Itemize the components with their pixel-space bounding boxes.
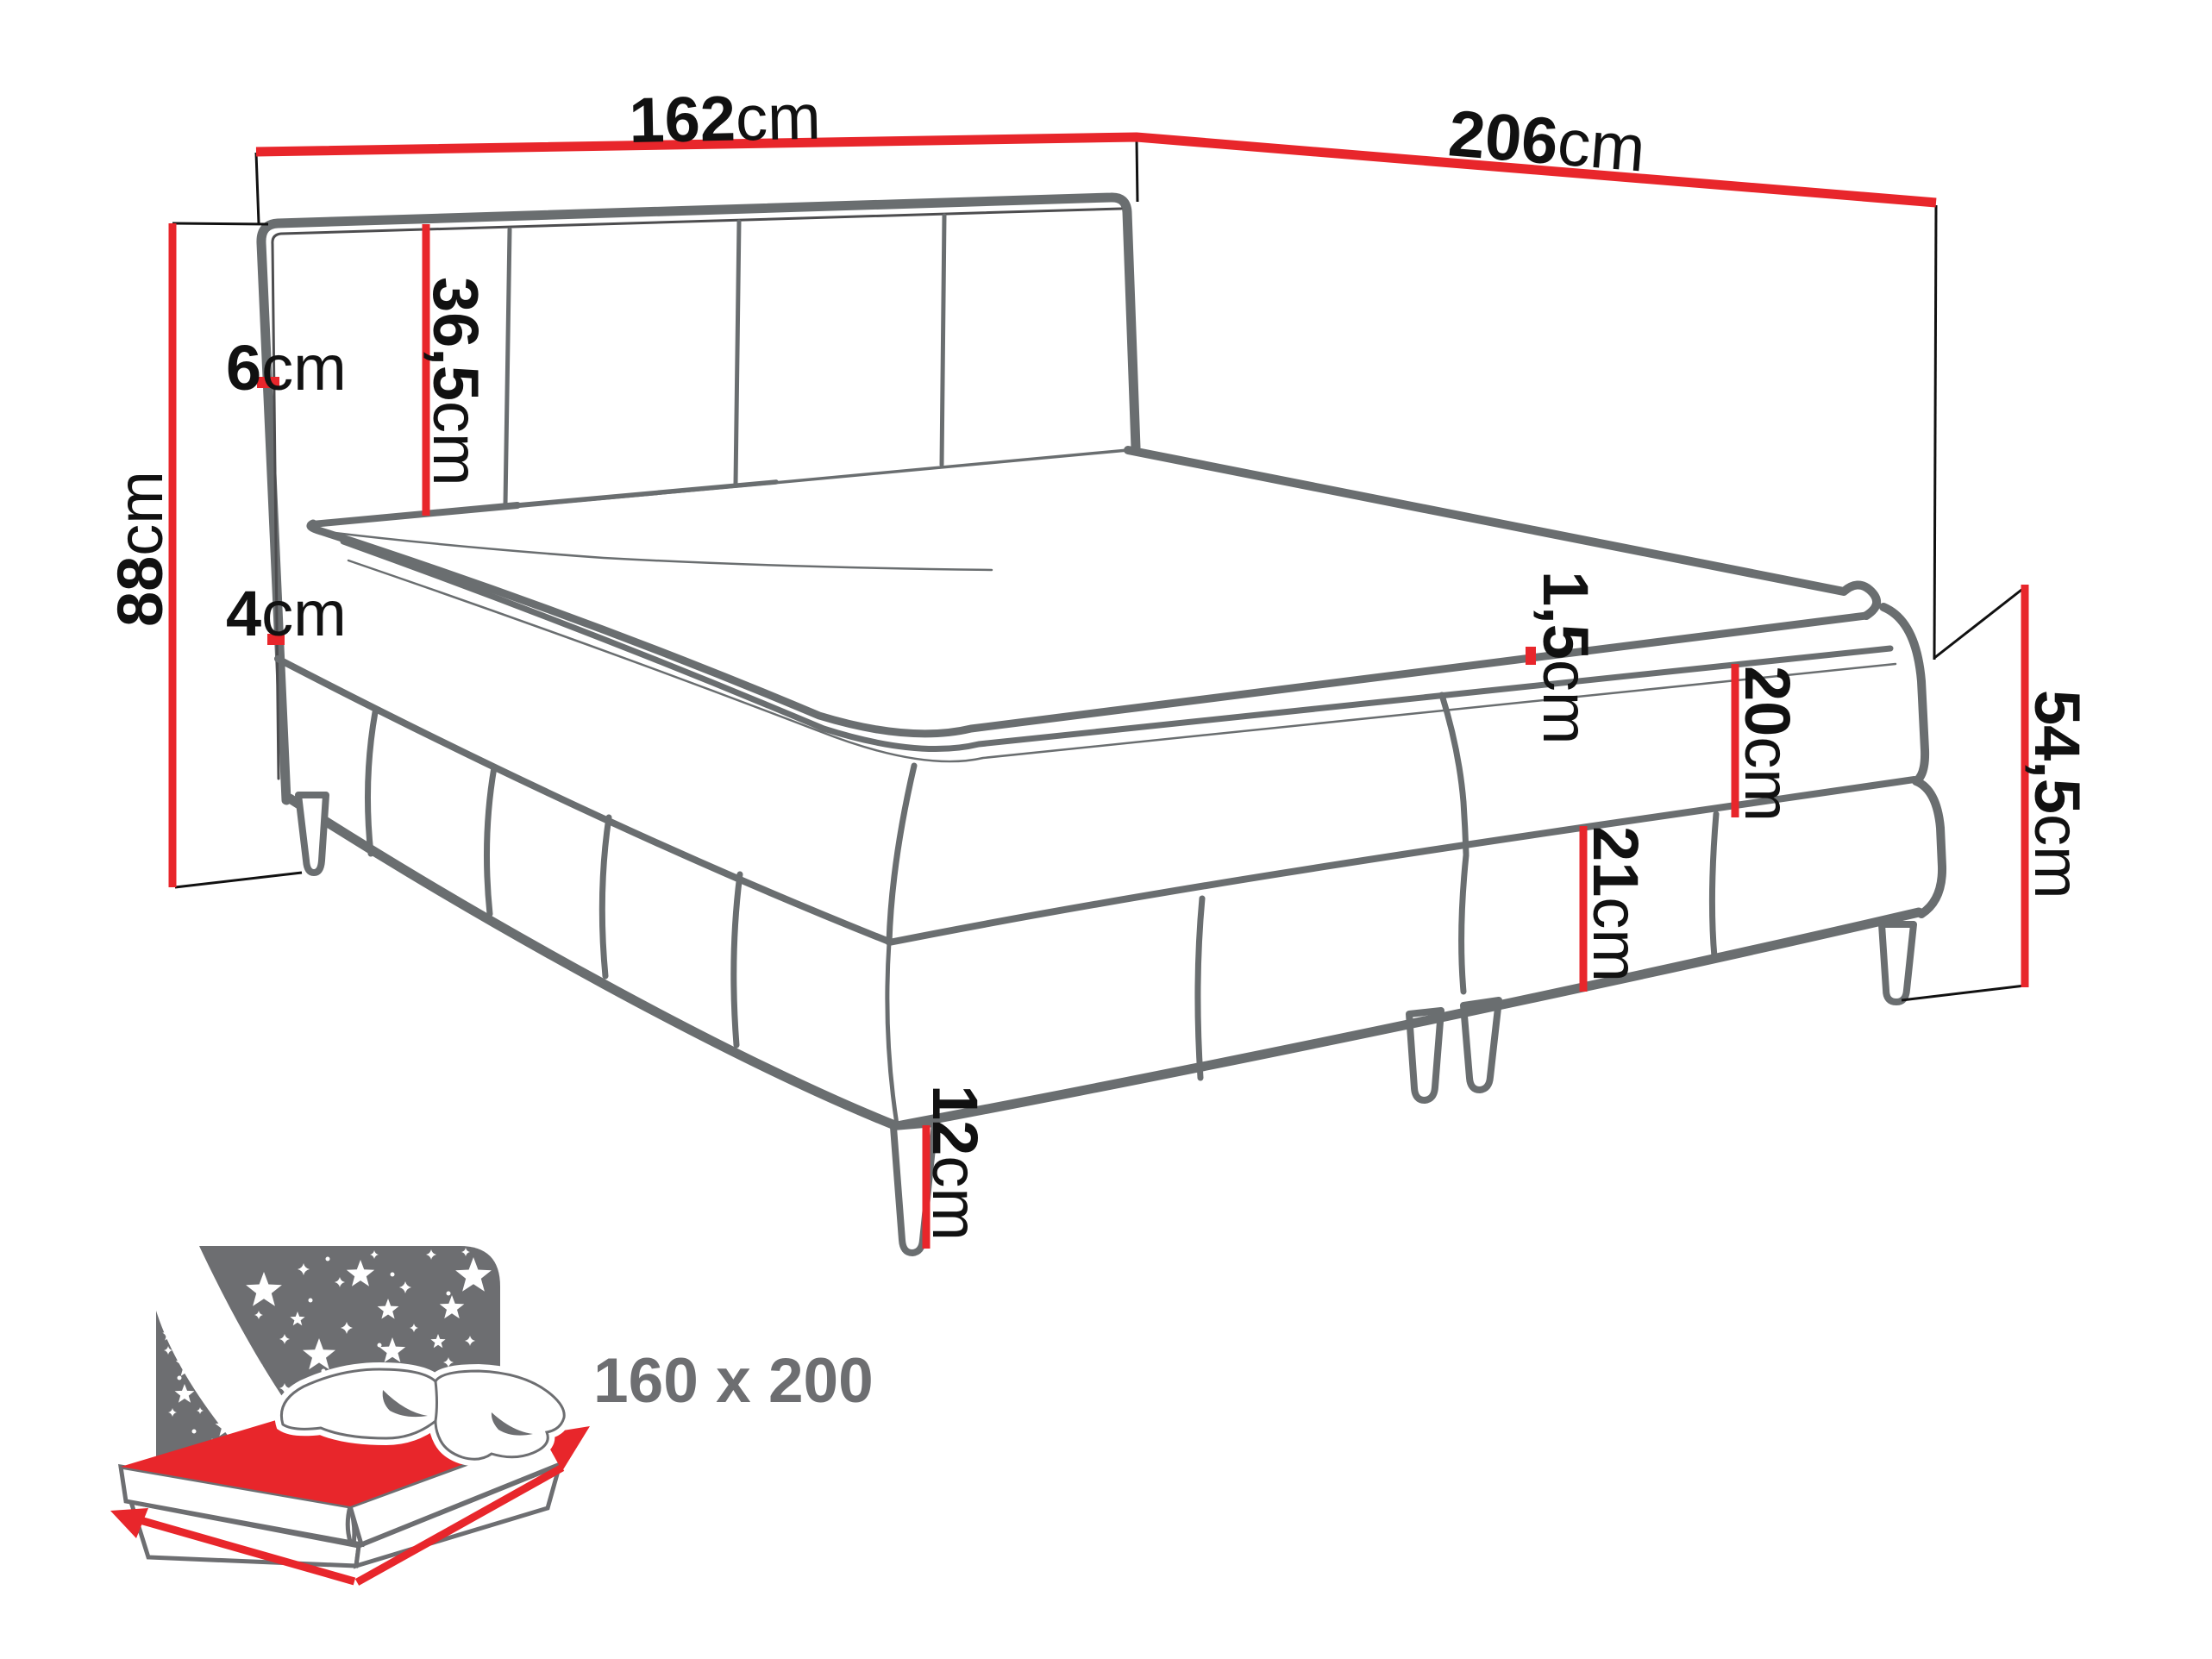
svg-text:20cm: 20cm xyxy=(1732,666,1803,822)
svg-text:54,5cm: 54,5cm xyxy=(2021,690,2093,899)
svg-text:21cm: 21cm xyxy=(1580,826,1651,982)
svg-text:206cm: 206cm xyxy=(1446,97,1648,185)
svg-text:162cm: 162cm xyxy=(629,81,822,156)
svg-text:12cm: 12cm xyxy=(919,1085,991,1241)
svg-text:6cm: 6cm xyxy=(226,332,347,404)
svg-text:1,5cm: 1,5cm xyxy=(1530,571,1601,745)
svg-text:4cm: 4cm xyxy=(226,578,347,649)
svg-text:36,5cm: 36,5cm xyxy=(420,277,492,486)
svg-text:160 x 200: 160 x 200 xyxy=(593,1346,874,1416)
svg-text:88cm: 88cm xyxy=(104,471,176,627)
